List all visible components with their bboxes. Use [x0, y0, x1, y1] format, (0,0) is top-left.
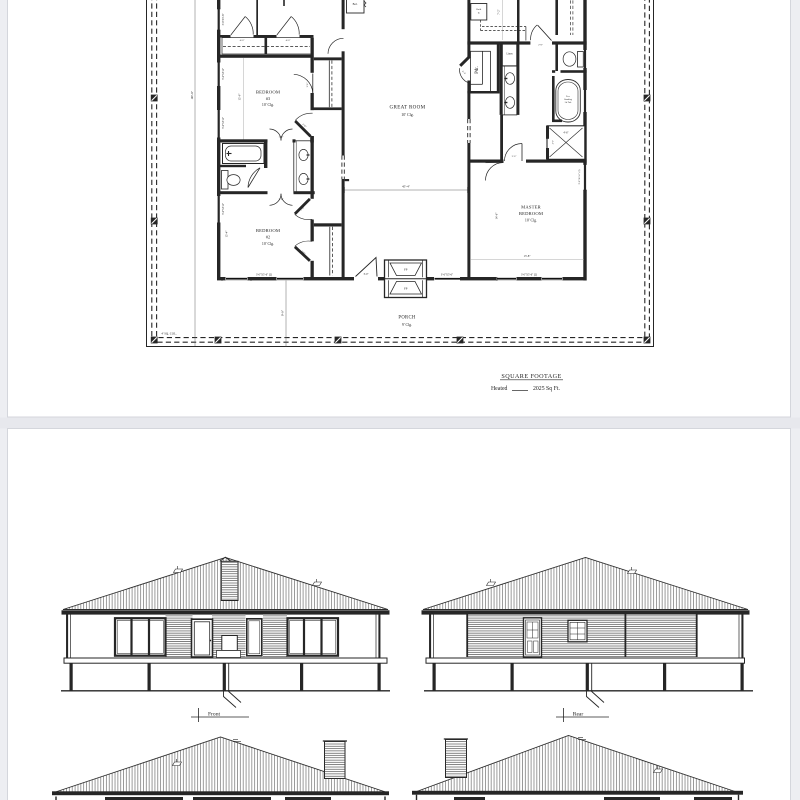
svg-text:Free: Free [566, 96, 570, 98]
svg-text:2'-8": 2'-8" [279, 198, 284, 201]
svg-text:2'-6": 2'-6" [512, 155, 517, 158]
svg-text:40'-0": 40'-0" [190, 90, 194, 99]
svg-text:3'-0"X5'-6": 3'-0"X5'-6" [222, 68, 225, 80]
svg-text:4' SQ. COL.: 4' SQ. COL. [161, 332, 177, 336]
svg-text:2'-8": 2'-8" [279, 136, 284, 139]
svg-text:10' Clg.: 10' Clg. [525, 218, 537, 222]
svg-text:Heated: Heated [491, 386, 508, 392]
svg-text:2'-6": 2'-6" [306, 83, 309, 88]
svg-text:10' Clg.: 10' Clg. [262, 242, 274, 246]
svg-text:7'-2": 7'-2" [498, 9, 501, 14]
svg-text:4'-0": 4'-0" [240, 39, 245, 42]
svg-text:13'-8": 13'-8" [524, 255, 531, 258]
svg-text:Bed.: Bed. [353, 3, 358, 6]
svg-text:Linen: Linen [506, 53, 513, 56]
svg-text:3'-0"X5'-6": 3'-0"X5'-6" [222, 14, 225, 26]
svg-text:PORCH: PORCH [398, 316, 415, 321]
svg-text:#3: #3 [266, 96, 270, 101]
svg-text:3'-0"X5'-6" (2): 3'-0"X5'-6" (2) [578, 169, 581, 184]
svg-text:SQUARE FOOTAGE: SQUARE FOOTAGE [501, 373, 561, 380]
svg-text:4'-0": 4'-0" [286, 39, 291, 42]
svg-text:Pdr.: Pdr. [475, 66, 480, 74]
svg-text:BEDROOM: BEDROOM [519, 211, 543, 216]
svg-text:9' Clg.: 9' Clg. [402, 323, 412, 327]
svg-text:Standing: Standing [564, 98, 573, 101]
svg-text:14'-6": 14'-6" [496, 213, 499, 220]
svg-text:2'-8": 2'-8" [538, 43, 543, 46]
svg-text:3'-0": 3'-0" [364, 273, 369, 276]
svg-text:FP: FP [404, 268, 408, 272]
svg-text:2'-6": 2'-6" [478, 160, 483, 163]
svg-text:15'-0": 15'-0" [239, 94, 242, 101]
svg-text:4'-0": 4'-0" [553, 140, 555, 144]
svg-text:3'-0"X5'-6": 3'-0"X5'-6" [222, 203, 225, 215]
svg-text:2025 Sq Ft.: 2025 Sq Ft. [533, 386, 560, 392]
svg-text:10' Clg.: 10' Clg. [262, 103, 274, 107]
svg-text:15'-4": 15'-4" [226, 231, 229, 238]
svg-text:3'-0"X5'-6" (2): 3'-0"X5'-6" (2) [521, 273, 537, 276]
svg-text:#2: #2 [266, 234, 270, 239]
svg-text:3'-0"X5'-6" (2): 3'-0"X5'-6" (2) [256, 273, 272, 276]
svg-text:BEDROOM: BEDROOM [256, 228, 280, 233]
svg-text:45'-4": 45'-4" [402, 185, 411, 189]
svg-text:4'-6": 4'-6" [563, 132, 568, 135]
svg-text:3'-0"X5'-6": 3'-0"X5'-6" [222, 117, 225, 129]
svg-text:GREAT ROOM: GREAT ROOM [390, 105, 426, 111]
svg-text:FP: FP [404, 287, 408, 291]
svg-text:3'-6"X5'-6": 3'-6"X5'-6" [441, 273, 453, 276]
svg-text:BEDROOM: BEDROOM [256, 90, 280, 95]
svg-text:5ft Tub: 5ft Tub [565, 101, 572, 104]
svg-text:MASTER: MASTER [521, 205, 542, 210]
svg-text:10' Clg.: 10' Clg. [401, 112, 414, 117]
svg-text:9'-0": 9'-0" [281, 309, 285, 316]
